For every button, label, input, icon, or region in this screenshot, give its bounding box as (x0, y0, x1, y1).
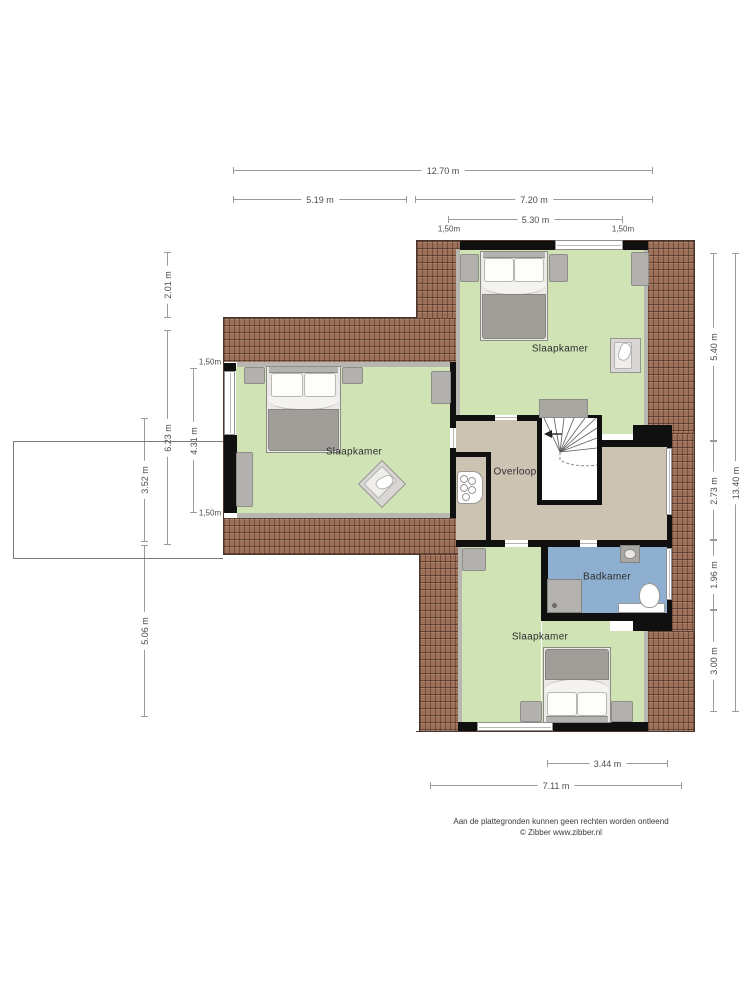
nightstand (244, 367, 265, 384)
wall-segment (602, 440, 672, 447)
dim-bottom-total: 7.11 m (430, 785, 682, 786)
floor-landing (602, 447, 667, 540)
roof-slope-hatch (648, 241, 694, 433)
wall-stairwell (597, 420, 602, 505)
sheet-fold (545, 679, 609, 692)
room-label-bedroom-bottom: Slaapkamer (512, 632, 568, 643)
door-opening (580, 543, 597, 544)
exterior-outline (416, 731, 695, 732)
armchair (610, 338, 641, 373)
door-opening (453, 428, 454, 448)
dim-right-top: 5.40 m (713, 253, 714, 441)
wardrobe (631, 252, 649, 286)
armchair-rotated (358, 460, 406, 508)
dresser (462, 548, 486, 571)
nightstand (549, 254, 568, 282)
room-label-bathroom: Badkamer (583, 572, 631, 583)
roof-slope-hatch (420, 554, 460, 731)
dim-right-bottom: 3.00 m (713, 610, 714, 712)
washbasin (457, 471, 483, 504)
window (666, 548, 672, 600)
dim-left-lower: 5.06 m (144, 545, 145, 717)
dim-left-upper: 2.01 m (167, 252, 168, 318)
wardrobe (236, 452, 253, 507)
pillow (484, 258, 514, 282)
wall-segment (667, 433, 672, 448)
dim-eave-top-left: 1,50m (438, 225, 460, 234)
dim-top-inner: 5.30 m (448, 219, 623, 220)
stairwell-half-wall (539, 399, 588, 418)
knee-wall (237, 513, 450, 518)
room-label-bedroom-left: Slaapkamer (326, 447, 382, 458)
blanket (545, 649, 609, 680)
window (555, 240, 623, 250)
floor-landing (537, 505, 602, 540)
nightstand (460, 254, 479, 282)
dim-top-right: 7.20 m (415, 199, 653, 200)
wall-segment (456, 540, 505, 547)
wall-segment (486, 452, 491, 540)
annex-outline (13, 558, 223, 559)
exterior-outline (223, 554, 420, 555)
disclaimer-line1: Aan de plattegronden kunnen geen rechten… (453, 816, 668, 827)
nightstand (611, 701, 633, 722)
door-opening (505, 543, 528, 544)
dim-right-mid: 2.73 m (713, 441, 714, 540)
window (224, 371, 235, 435)
dim-top-total: 12.70 m (233, 170, 653, 171)
wall-segment (460, 241, 555, 250)
nightstand (520, 701, 542, 722)
headboard (546, 716, 608, 722)
wall-segment (458, 722, 477, 731)
wall-segment (548, 540, 580, 547)
pillow (577, 692, 607, 716)
stairwell-void (542, 418, 597, 500)
dresser (431, 371, 451, 404)
wall-segment (456, 452, 490, 457)
room-label-landing: Overloop (494, 467, 537, 478)
roof-slope-hatch (672, 433, 694, 631)
dim-top-left: 5.19 m (233, 199, 407, 200)
copyright-line: © Zibber www.zibber.nl (453, 827, 668, 838)
wall-segment (667, 600, 672, 613)
shower (547, 579, 582, 613)
annex-outline (13, 441, 223, 442)
annex-outline (13, 441, 14, 558)
wall-segment (224, 363, 236, 371)
window (477, 722, 553, 731)
pillow (547, 692, 577, 716)
nightstand (342, 367, 363, 384)
dim-bottom-inner: 3.44 m (547, 763, 668, 764)
disclaimer-text: Aan de plattegronden kunnen geen rechten… (453, 816, 668, 838)
wall-segment (633, 621, 672, 631)
roof-slope-hatch (224, 318, 461, 362)
exterior-outline (694, 240, 695, 732)
dim-left-wing: 6.23 m (167, 330, 168, 545)
dim-eave-top-right: 1,50m (612, 225, 634, 234)
double-bed (480, 251, 548, 341)
wall-segment (553, 722, 648, 731)
dim-right-bath: 1.96 m (713, 540, 714, 610)
wall-segment (528, 540, 548, 547)
sink (620, 545, 640, 563)
double-bed (543, 647, 611, 723)
wall-segment (623, 241, 648, 250)
window (666, 448, 672, 515)
staircase (542, 418, 597, 500)
pillow (304, 373, 337, 397)
pillow (514, 258, 544, 282)
double-bed (266, 366, 341, 453)
floorplan-canvas: 12.70 m 5.19 m 7.20 m 5.30 m 1,50m 1,50m… (0, 0, 750, 1000)
dim-eave-left-top: 1,50m (199, 358, 221, 367)
toilet (639, 583, 660, 608)
room-label-bedroom-top: Slaapkamer (532, 344, 588, 355)
wall-segment (541, 613, 672, 621)
roof-slope-hatch (224, 518, 461, 554)
dim-eave-left-bottom: 1,50m (199, 509, 221, 518)
wall-segment (667, 515, 672, 548)
door-opening (495, 417, 517, 418)
wall-stairwell (537, 500, 602, 505)
dim-left-annex: 3.52 m (144, 418, 145, 542)
dim-right-total: 13.40 m (735, 253, 736, 712)
blanket (268, 409, 339, 451)
blanket (482, 294, 546, 339)
knee-wall (644, 631, 648, 722)
pillow (271, 373, 304, 397)
roof-slope-hatch (648, 631, 694, 731)
wall-segment (450, 415, 495, 421)
wall-segment (450, 448, 456, 518)
